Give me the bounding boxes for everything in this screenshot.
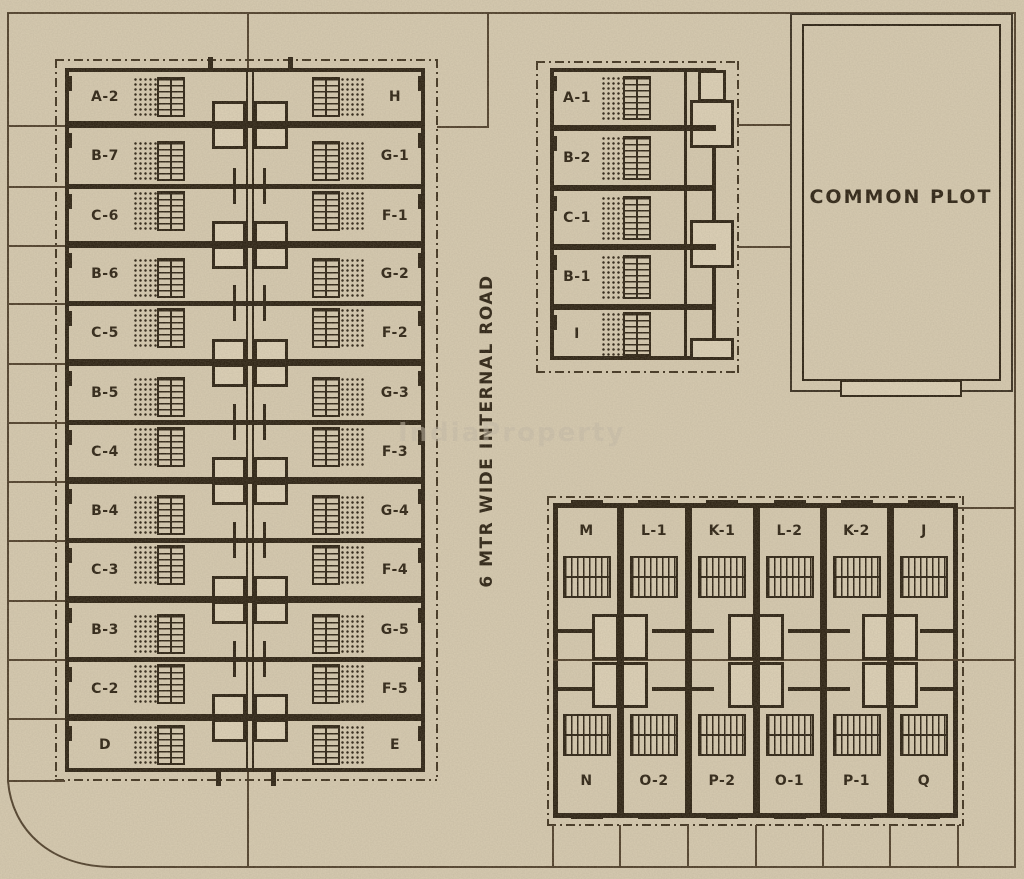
- window-tick: [418, 489, 425, 504]
- stair-hatch-dots: [133, 191, 157, 231]
- core-box: [254, 126, 288, 149]
- unit-label: G-1: [381, 148, 410, 164]
- south-block-boundary-top: [547, 496, 964, 498]
- unit-label: H: [389, 89, 401, 105]
- stair-hatch-dots: [133, 545, 157, 585]
- core-box: [728, 614, 755, 660]
- unit-label: B-6: [91, 266, 119, 282]
- core-box: [690, 338, 734, 360]
- stair-hatch-dots: [340, 258, 364, 298]
- unit-label: Q: [918, 773, 930, 789]
- core-box: [254, 364, 288, 387]
- staircase: [312, 614, 340, 654]
- plot-division-line: [7, 303, 65, 305]
- unit-label: K-1: [709, 523, 736, 539]
- window-tick: [418, 311, 425, 326]
- window-tick: [550, 76, 557, 91]
- window-grill: [630, 714, 678, 756]
- unit-label: B-5: [91, 385, 119, 401]
- party-wall: [550, 125, 716, 131]
- unit-label: C-3: [91, 562, 119, 578]
- stair-hatch-dots: [133, 258, 157, 298]
- stair-hatch-dots: [133, 427, 157, 467]
- staircase: [157, 77, 185, 117]
- window-tick: [418, 76, 425, 91]
- core-box: [690, 100, 734, 148]
- party-wall: [65, 184, 425, 189]
- window-grill: [563, 556, 611, 598]
- unit-label: O-1: [775, 773, 804, 789]
- window-tick: [706, 500, 738, 506]
- common-plot-gate: [840, 380, 962, 397]
- core-box: [891, 662, 918, 708]
- stair-hatch-dots: [340, 545, 364, 585]
- window-tick: [418, 194, 425, 209]
- unit-label: F-1: [382, 208, 408, 224]
- plot-division-line: [619, 825, 621, 868]
- staircase: [157, 377, 185, 417]
- window-tick: [65, 194, 72, 209]
- staircase: [623, 136, 651, 180]
- staircase: [312, 664, 340, 704]
- south-block-boundary-left: [547, 496, 549, 826]
- window-tick: [65, 608, 72, 623]
- window-tick: [550, 315, 557, 330]
- staircase: [157, 545, 185, 585]
- duct-notch: [263, 522, 266, 558]
- window-tick: [774, 813, 806, 819]
- unit-label: F-5: [382, 681, 408, 697]
- west-block-boundary-bottom: [55, 779, 437, 781]
- window-tick: [418, 726, 425, 741]
- unit-label: C-4: [91, 444, 119, 460]
- staircase: [312, 258, 340, 298]
- core-box: [592, 614, 619, 660]
- core-box: [212, 719, 246, 742]
- staircase: [312, 495, 340, 535]
- stair-hatch-dots: [133, 725, 157, 765]
- stair-hatch-dots: [340, 191, 364, 231]
- balcony-ledge: [788, 687, 850, 691]
- unit-label: N: [580, 773, 592, 789]
- core-box: [212, 576, 246, 599]
- unit-label: L-1: [641, 523, 667, 539]
- north-block-boundary-top: [536, 61, 739, 63]
- window-tick: [841, 813, 873, 819]
- unit-label: B-7: [91, 148, 119, 164]
- unit-label: G-4: [381, 503, 410, 519]
- staircase: [312, 427, 340, 467]
- window-grill: [698, 714, 746, 756]
- duct-notch: [233, 285, 236, 321]
- duct-notch: [233, 522, 236, 558]
- party-wall: [685, 503, 692, 818]
- core-box: [212, 457, 246, 480]
- core-box: [254, 694, 288, 717]
- staircase: [312, 191, 340, 231]
- plot-division-line: [7, 540, 65, 542]
- entrance-jamb: [271, 768, 276, 786]
- core-box: [254, 101, 288, 124]
- window-grill: [833, 556, 881, 598]
- staircase: [157, 141, 185, 181]
- sheet-border-left: [7, 12, 9, 782]
- common-plot-label: COMMON PLOT: [809, 186, 992, 208]
- west-block-boundary-top: [55, 59, 437, 61]
- core-box: [212, 221, 246, 244]
- balcony-ledge: [920, 687, 953, 691]
- party-wall: [550, 244, 716, 250]
- duct-notch: [263, 641, 266, 677]
- entrance-jamb: [216, 768, 221, 786]
- staircase: [157, 725, 185, 765]
- stair-hatch-dots: [601, 312, 623, 356]
- window-tick: [550, 136, 557, 151]
- unit-label: C-1: [563, 210, 591, 226]
- plot-division-line: [7, 186, 65, 188]
- core-box: [698, 70, 726, 102]
- stair-hatch-dots: [133, 664, 157, 704]
- plot-division-line: [737, 246, 790, 248]
- window-tick: [65, 548, 72, 563]
- party-wall: [550, 304, 716, 310]
- core-box: [212, 364, 246, 387]
- duct-notch: [233, 404, 236, 440]
- unit-label: B-2: [563, 150, 591, 166]
- unit-label: I: [574, 326, 580, 342]
- unit-label: A-2: [91, 89, 119, 105]
- core-box: [862, 614, 889, 660]
- unit-label: G-2: [381, 266, 410, 282]
- core-box: [212, 339, 246, 362]
- window-tick: [908, 813, 940, 819]
- duct-notch: [263, 168, 266, 204]
- duct-notch: [233, 641, 236, 677]
- window-tick: [571, 500, 603, 506]
- window-tick: [65, 76, 72, 91]
- staircase: [312, 725, 340, 765]
- stair-hatch-dots: [133, 377, 157, 417]
- balcony-ledge: [558, 687, 592, 691]
- unit-label: J: [921, 523, 927, 539]
- corner-arc: [0, 775, 120, 875]
- window-tick: [418, 667, 425, 682]
- staircase: [623, 76, 651, 120]
- window-tick: [65, 667, 72, 682]
- window-tick: [65, 133, 72, 148]
- balcony-ledge: [558, 629, 592, 633]
- stair-hatch-dots: [340, 495, 364, 535]
- staircase: [312, 377, 340, 417]
- plot-division-line: [687, 825, 689, 868]
- window-tick: [65, 253, 72, 268]
- core-box: [621, 662, 648, 708]
- core-box: [212, 694, 246, 717]
- staircase: [157, 664, 185, 704]
- entrance-jamb: [208, 57, 213, 69]
- plot-division-line: [958, 507, 1016, 509]
- plot-division-line: [7, 659, 65, 661]
- window-tick: [418, 608, 425, 623]
- core-box: [254, 457, 288, 480]
- core-box: [728, 662, 755, 708]
- stair-hatch-dots: [133, 495, 157, 535]
- window-tick: [65, 430, 72, 445]
- window-grill: [900, 556, 948, 598]
- core-box: [212, 482, 246, 505]
- unit-label: P-2: [708, 773, 735, 789]
- core-box: [621, 614, 648, 660]
- watermark: IndiaProperty: [398, 418, 625, 448]
- unit-label: C-2: [91, 681, 119, 697]
- unit-label: E: [390, 737, 400, 753]
- stair-hatch-dots: [340, 664, 364, 704]
- plot-division-line: [7, 780, 65, 782]
- core-box: [254, 601, 288, 624]
- north-block-boundary-right: [737, 61, 739, 373]
- window-grill: [563, 714, 611, 756]
- window-tick: [418, 548, 425, 563]
- window-grill: [766, 556, 814, 598]
- plot-division-line: [552, 825, 554, 868]
- unit-label: C-5: [91, 325, 119, 341]
- plot-division-line: [7, 718, 65, 720]
- north-block-boundary-bottom: [536, 371, 739, 373]
- core-box: [592, 662, 619, 708]
- core-box: [254, 576, 288, 599]
- unit-label: L-2: [777, 523, 803, 539]
- plot-division-line: [7, 481, 65, 483]
- unit-label: B-3: [91, 622, 119, 638]
- duct-notch: [263, 285, 266, 321]
- plot-division-line: [7, 125, 65, 127]
- party-wall: [550, 185, 716, 191]
- stair-hatch-dots: [340, 77, 364, 117]
- core-box: [254, 246, 288, 269]
- window-tick: [706, 813, 738, 819]
- plot-division-line: [7, 245, 65, 247]
- plot-division-line: [755, 825, 757, 868]
- window-tick: [418, 133, 425, 148]
- stair-hatch-dots: [340, 141, 364, 181]
- party-wall: [820, 503, 827, 818]
- stair-hatch-dots: [601, 136, 623, 180]
- window-tick: [65, 726, 72, 741]
- balcony-ledge: [920, 629, 953, 633]
- corridor-wall: [684, 68, 687, 360]
- unit-label: B-1: [563, 269, 591, 285]
- staircase: [157, 614, 185, 654]
- road-edge-line: [487, 12, 489, 127]
- window-tick: [908, 500, 940, 506]
- road-centerline-bottom: [247, 772, 249, 867]
- unit-label: G-5: [381, 622, 410, 638]
- duct-notch: [263, 404, 266, 440]
- core-box: [757, 662, 784, 708]
- core-box: [862, 662, 889, 708]
- unit-label: A-1: [563, 90, 591, 106]
- window-tick: [774, 500, 806, 506]
- staircase: [312, 545, 340, 585]
- window-tick: [65, 311, 72, 326]
- stair-hatch-dots: [340, 427, 364, 467]
- stair-hatch-dots: [133, 77, 157, 117]
- plot-division-line: [958, 659, 1016, 661]
- unit-label: F-4: [382, 562, 408, 578]
- window-tick: [65, 489, 72, 504]
- window-grill: [698, 556, 746, 598]
- unit-label: F-2: [382, 325, 408, 341]
- stair-hatch-dots: [133, 141, 157, 181]
- window-tick: [638, 813, 670, 819]
- stair-hatch-dots: [340, 377, 364, 417]
- plot-division-line: [889, 825, 891, 868]
- core-box: [891, 614, 918, 660]
- core-box: [212, 126, 246, 149]
- core-box: [212, 601, 246, 624]
- window-grill: [833, 714, 881, 756]
- stair-hatch-dots: [133, 308, 157, 348]
- unit-label: P-1: [843, 773, 870, 789]
- staircase: [312, 77, 340, 117]
- staircase: [157, 495, 185, 535]
- unit-label: M: [579, 523, 593, 539]
- plot-division-line: [822, 825, 824, 868]
- window-tick: [418, 371, 425, 386]
- window-tick: [638, 500, 670, 506]
- unit-label: D: [99, 737, 111, 753]
- staircase: [312, 141, 340, 181]
- window-tick: [841, 500, 873, 506]
- unit-label: B-4: [91, 503, 119, 519]
- balcony-ledge: [652, 687, 714, 691]
- plot-division-line: [7, 600, 65, 602]
- balcony-ledge: [652, 629, 714, 633]
- stair-hatch-dots: [601, 76, 623, 120]
- party-wall: [617, 503, 624, 818]
- window-grill: [630, 556, 678, 598]
- staircase: [623, 255, 651, 299]
- unit-label: C-6: [91, 208, 119, 224]
- north-block-boundary-left: [536, 61, 538, 373]
- staircase: [157, 308, 185, 348]
- site-layout-plan: COMMON PLOT 6 MTR WIDE INTERNAL ROAD Ind…: [0, 0, 1024, 879]
- window-tick: [550, 196, 557, 211]
- window-tick: [550, 255, 557, 270]
- unit-label: O-2: [639, 773, 668, 789]
- staircase: [157, 258, 185, 298]
- duct-notch: [233, 168, 236, 204]
- stair-hatch-dots: [133, 614, 157, 654]
- stair-hatch-dots: [340, 308, 364, 348]
- party-wall: [753, 503, 760, 818]
- window-grill: [900, 714, 948, 756]
- staircase: [312, 308, 340, 348]
- party-wall: [887, 503, 894, 818]
- party-wall: [65, 538, 425, 543]
- core-box: [757, 614, 784, 660]
- unit-label: G-3: [381, 385, 410, 401]
- staircase: [157, 191, 185, 231]
- core-box: [212, 101, 246, 124]
- plot-division-line: [957, 825, 959, 868]
- window-tick: [418, 253, 425, 268]
- staircase: [623, 312, 651, 356]
- window-tick: [65, 371, 72, 386]
- plot-division-line: [7, 422, 65, 424]
- balcony-ledge: [788, 629, 850, 633]
- south-block-boundary-right: [962, 496, 964, 826]
- stair-hatch-dots: [601, 255, 623, 299]
- staircase: [623, 196, 651, 240]
- stair-hatch-dots: [340, 725, 364, 765]
- unit-label: K-2: [843, 523, 870, 539]
- staircase: [157, 427, 185, 467]
- window-tick: [571, 813, 603, 819]
- entrance-jamb: [288, 57, 293, 69]
- plot-division-line: [737, 124, 790, 126]
- road-edge-tick: [437, 126, 489, 128]
- core-box: [254, 339, 288, 362]
- party-wall: [65, 420, 425, 425]
- party-wall: [65, 301, 425, 306]
- core-box: [254, 719, 288, 742]
- party-wall: [65, 657, 425, 662]
- core-box: [212, 246, 246, 269]
- plot-division-line: [7, 363, 65, 365]
- window-grill: [766, 714, 814, 756]
- stair-hatch-dots: [340, 614, 364, 654]
- core-box: [254, 482, 288, 505]
- sheet-border-right: [1014, 12, 1016, 868]
- stair-hatch-dots: [601, 196, 623, 240]
- core-box: [254, 221, 288, 244]
- west-block-boundary-left: [55, 59, 57, 781]
